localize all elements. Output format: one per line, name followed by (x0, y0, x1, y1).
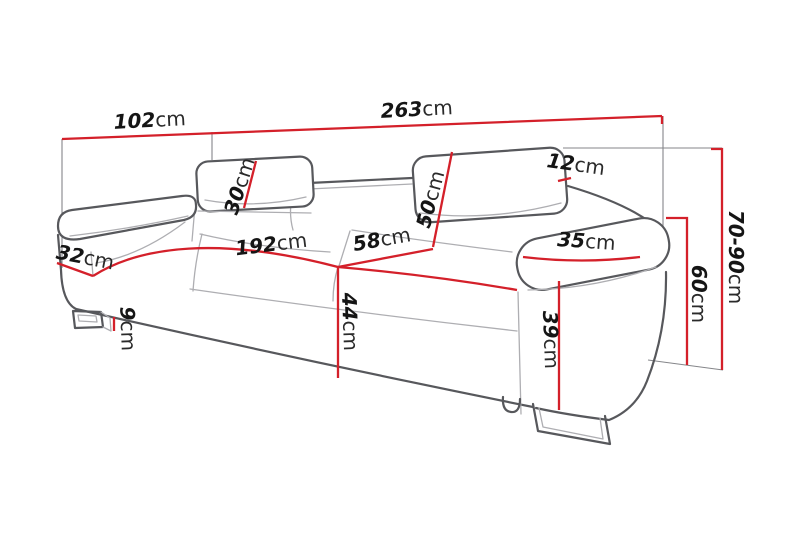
dim-label-35: 35cm (557, 227, 617, 255)
dim-label-192: 192cm (234, 228, 309, 261)
dim-line-58 (338, 249, 433, 267)
diagram-canvas: 102cm 263cm 30cm 50cm 12cm 192cm 58cm 35… (0, 0, 800, 533)
right-armrest-front-edge (518, 292, 521, 414)
dim-label-32: 32cm (54, 240, 116, 275)
dim-label-9: 9cm (115, 306, 141, 351)
dim-label-39: 39cm (538, 310, 564, 369)
back-rail-top (309, 178, 412, 183)
front-left-leg-inner (78, 315, 97, 322)
dim-label-102: 102cm (113, 106, 186, 134)
right-armrest-cushion (512, 214, 673, 294)
dim-line-70-90 (711, 149, 722, 370)
sofa-sketch (58, 147, 674, 444)
sofa-dimension-diagram: 102cm 263cm 30cm 50cm 12cm 192cm 58cm 35… (0, 0, 800, 533)
dim-label-263: 263cm (380, 95, 453, 123)
dim-label-60: 60cm (687, 265, 711, 323)
left-armrest-cushion (58, 196, 196, 240)
seat-seam-left (193, 234, 202, 291)
back-rail-band (309, 184, 412, 189)
dim-label-70-90: 70-90cm (724, 210, 748, 304)
front-right-leg-inner (539, 408, 603, 439)
seat-seam-center-back (339, 231, 350, 266)
ref-line-floor (648, 360, 723, 370)
base-bottom-edge (76, 309, 533, 407)
dim-label-58: 58cm (351, 222, 413, 256)
dim-line-seat-front-right (338, 267, 517, 290)
dim-label-44: 44cm (337, 291, 363, 351)
